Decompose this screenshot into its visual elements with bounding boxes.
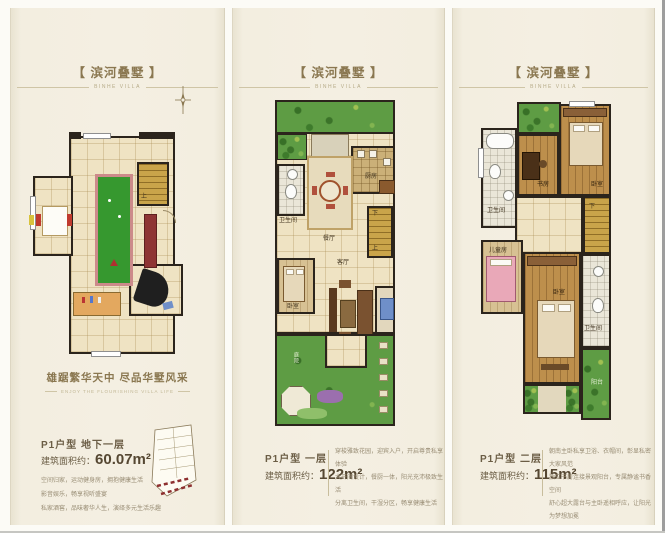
side-garden xyxy=(277,134,307,160)
toilet xyxy=(489,164,501,179)
card-table xyxy=(42,206,68,236)
stairs-label: 上 xyxy=(141,194,147,200)
kids-bed xyxy=(486,256,516,302)
bathroom-right xyxy=(581,254,611,348)
area-row: 建筑面积约：60.07m² xyxy=(41,451,151,469)
room-label-dining: 餐厅 xyxy=(323,236,335,242)
sink xyxy=(503,190,514,201)
dining-chair xyxy=(326,204,335,209)
billiard-ball xyxy=(108,199,111,202)
room-label-bath-right: 卫生间 xyxy=(584,326,602,332)
window xyxy=(478,148,484,178)
description-line: 私家酒窖，品味奢华人生，演绎多元生活乐趣 xyxy=(41,502,161,516)
toilet xyxy=(592,298,604,313)
description-list: 穿梭雅致花园，迎宾入户，开启尊贵私享体验 大开间设计，餐厨一体，阳光充沛极致生活… xyxy=(335,446,444,511)
unit-label: P1户型 一层 xyxy=(265,450,327,465)
room-label-bedroom-main: 卧室 xyxy=(553,290,565,296)
divider-line xyxy=(17,87,89,88)
stepping-stone xyxy=(379,390,388,397)
plant-balcony xyxy=(517,102,561,134)
description-line: 独立书房连接景观阳台，专属静谧书香空间 xyxy=(549,472,654,498)
divider-line xyxy=(239,87,310,88)
panel-subtitle: BINHE VILLA xyxy=(315,84,362,90)
room-label-kids: 儿童房 xyxy=(489,248,507,254)
description-line: 朝南主卧私享卫浴、衣帽间，彰显私密大家风范 xyxy=(549,446,654,472)
divider-line xyxy=(582,87,648,88)
bedroom-top xyxy=(559,104,611,196)
kitchen-appliance xyxy=(369,150,377,158)
window xyxy=(569,101,595,107)
room-label-kitchen: 厨房 xyxy=(365,174,377,180)
flower-bed xyxy=(317,390,343,403)
stairs-label-up: 上 xyxy=(372,246,378,252)
chair-red xyxy=(67,214,72,226)
chaise xyxy=(380,298,394,320)
stairs xyxy=(367,206,393,258)
divider-line xyxy=(45,391,57,392)
tagline-subtitle: ENJOY THE FLOURISHING VILLA LIFE xyxy=(45,389,190,394)
wall-segment xyxy=(139,132,175,139)
room-label-study: 书房 xyxy=(537,182,549,188)
panel-subtitle: BINHE VILLA xyxy=(530,84,577,90)
window xyxy=(91,351,121,357)
bathroom xyxy=(277,164,305,216)
brochure-panel-second-floor: 【 滨河叠墅 】 BINHE VILLA 书房 卧室 卫生间 xyxy=(452,8,655,525)
stepping-stone xyxy=(379,374,388,381)
description-line: 穿梭雅致花园，迎宾入户，开启尊贵私享体验 xyxy=(335,446,444,472)
hallway xyxy=(515,196,583,254)
unit-label: P1户型 二层 xyxy=(480,450,542,465)
chair-red xyxy=(36,214,41,226)
room-label-yard: 庭院 xyxy=(293,352,299,364)
bed xyxy=(569,122,603,166)
kitchen-appliance xyxy=(357,150,365,158)
kitchen-appliance xyxy=(383,158,391,166)
desk-chair xyxy=(539,160,547,168)
pillow xyxy=(490,259,512,266)
room-label-bath-left: 卫生间 xyxy=(487,208,505,214)
dining-chair xyxy=(326,172,335,177)
bed-bench xyxy=(541,364,569,370)
compass-icon xyxy=(174,86,192,114)
panel-title: 【 滨河叠墅 】 xyxy=(453,62,654,81)
stairs-label-down: 下 xyxy=(372,211,378,217)
divider-line xyxy=(178,391,190,392)
billiard-rack xyxy=(110,259,118,266)
tv-cabinet xyxy=(329,288,337,332)
divider-line xyxy=(367,87,438,88)
room-label-balcony: 阳台 xyxy=(591,380,603,386)
wine-bar-counter xyxy=(144,214,157,268)
area-prefix: 建筑面积约： xyxy=(41,456,95,466)
pillow xyxy=(296,269,304,275)
area-prefix: 建筑面积约： xyxy=(480,471,534,481)
shrub-bed xyxy=(297,408,327,419)
description-line: 分离卫生间，干湿分区，畅享健康生活 xyxy=(335,498,444,511)
stepping-stone xyxy=(379,406,388,413)
stepping-stone xyxy=(379,358,388,365)
pillow xyxy=(588,125,600,132)
balcony-plants xyxy=(566,386,579,412)
area-prefix: 建筑面积约： xyxy=(265,471,319,481)
pillow xyxy=(542,304,555,312)
bed xyxy=(283,266,305,302)
bottle xyxy=(82,297,85,303)
billiard-table xyxy=(95,174,133,286)
sideboard xyxy=(379,180,395,194)
text-divider xyxy=(542,450,543,496)
wardrobe xyxy=(527,256,577,266)
bottle xyxy=(90,296,93,303)
bedroom-main xyxy=(523,252,581,384)
tagline: 雄踞繁华天中 尽品华墅风采 xyxy=(11,370,224,385)
study-nook xyxy=(375,286,395,334)
coffee-table xyxy=(340,300,356,328)
balcony-plants xyxy=(525,386,538,412)
description-line: 舒心超大露台与主卧遥相呼应，让阳光为梦想加冕 xyxy=(549,498,654,524)
header-divider: BINHE VILLA xyxy=(239,84,438,90)
brochure-panel-basement: 【 滨河叠墅 】 BINHE VILLA 上 xyxy=(10,8,225,525)
stairs-label-down: 下 xyxy=(589,204,595,210)
unit-label: P1户型 地下一层 xyxy=(41,436,125,451)
panel-subtitle: BINHE VILLA xyxy=(94,84,141,90)
chair-yellow xyxy=(29,215,34,225)
stairs xyxy=(583,196,611,254)
site-key-plan-icon xyxy=(143,422,203,504)
sink xyxy=(287,169,298,180)
pillow xyxy=(573,125,585,132)
wall-segment xyxy=(69,132,81,139)
bed xyxy=(537,300,575,358)
header-divider: BINHE VILLA xyxy=(459,84,648,90)
dining-chair xyxy=(343,186,348,195)
panel-title: 【 滨河叠墅 】 xyxy=(11,62,224,81)
stepping-stone xyxy=(379,342,388,349)
description-line: 大开间设计，餐厨一体，阳光充沛极致生活 xyxy=(335,472,444,498)
bathtub xyxy=(486,133,514,149)
billiard-ball xyxy=(118,215,121,218)
dining-chair xyxy=(312,186,317,195)
tagline-subtitle-text: ENJOY THE FLOURISHING VILLA LIFE xyxy=(61,389,174,394)
text-divider xyxy=(328,450,329,496)
armchair xyxy=(339,280,351,288)
description-list: 朝南主卧私享卫浴、衣帽间，彰显私密大家风范 独立书房连接景观阳台，专属静谧书香空… xyxy=(549,446,654,524)
bottle xyxy=(98,297,101,303)
bar-cabinet xyxy=(73,292,121,316)
pillow xyxy=(558,304,571,312)
window xyxy=(83,133,111,139)
desk xyxy=(522,152,540,180)
wardrobe xyxy=(563,108,607,117)
room-label-bedroom: 卧室 xyxy=(287,304,299,310)
front-garden xyxy=(275,100,395,134)
room-label-living: 客厅 xyxy=(337,260,349,266)
room-label-bath: 卫生间 xyxy=(279,218,297,224)
sink xyxy=(593,266,604,277)
panel-title: 【 滨河叠墅 】 xyxy=(233,62,444,81)
room-label-bedroom-top: 卧室 xyxy=(591,182,603,188)
divider-line xyxy=(459,87,525,88)
dining-table xyxy=(319,180,341,202)
brochure-panel-first-floor: 【 滨河叠墅 】 BINHE VILLA 厨房 卫生间 餐厅 xyxy=(232,8,445,525)
toilet xyxy=(285,184,297,199)
pillow xyxy=(286,269,294,275)
terrace xyxy=(325,334,367,368)
